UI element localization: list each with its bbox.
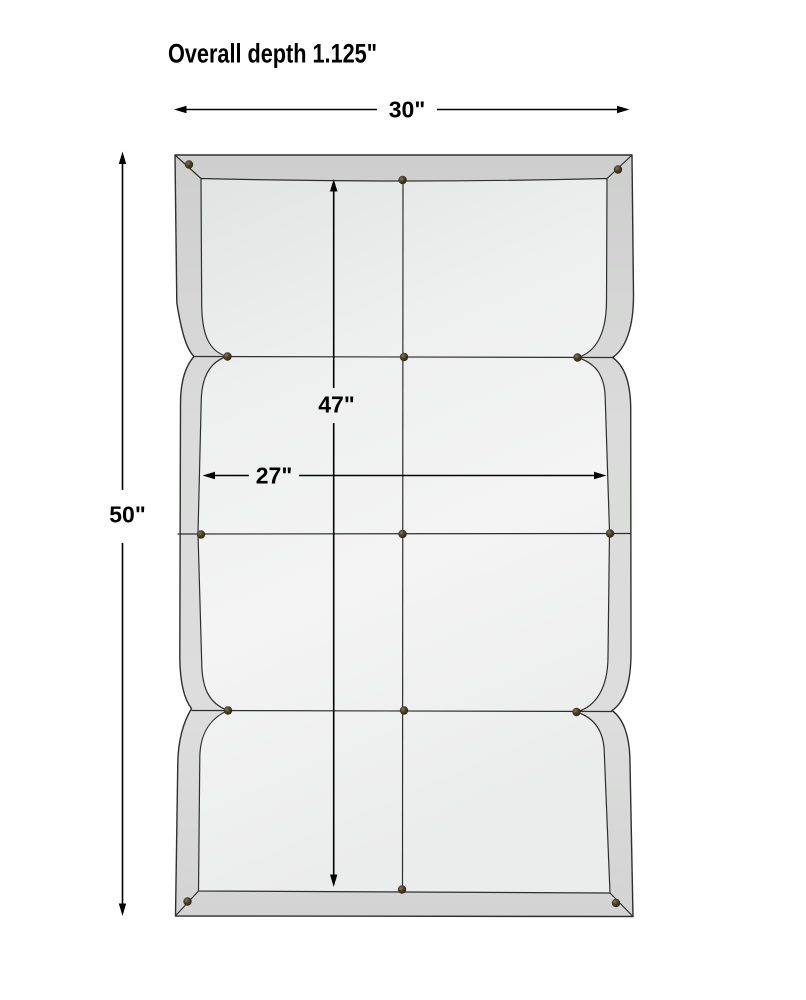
- svg-text:47": 47": [318, 392, 355, 418]
- svg-text:30": 30": [389, 97, 426, 123]
- svg-text:27": 27": [256, 463, 293, 489]
- svg-text:Overall depth 1.125": Overall depth 1.125": [168, 39, 377, 69]
- svg-text:50": 50": [109, 502, 146, 528]
